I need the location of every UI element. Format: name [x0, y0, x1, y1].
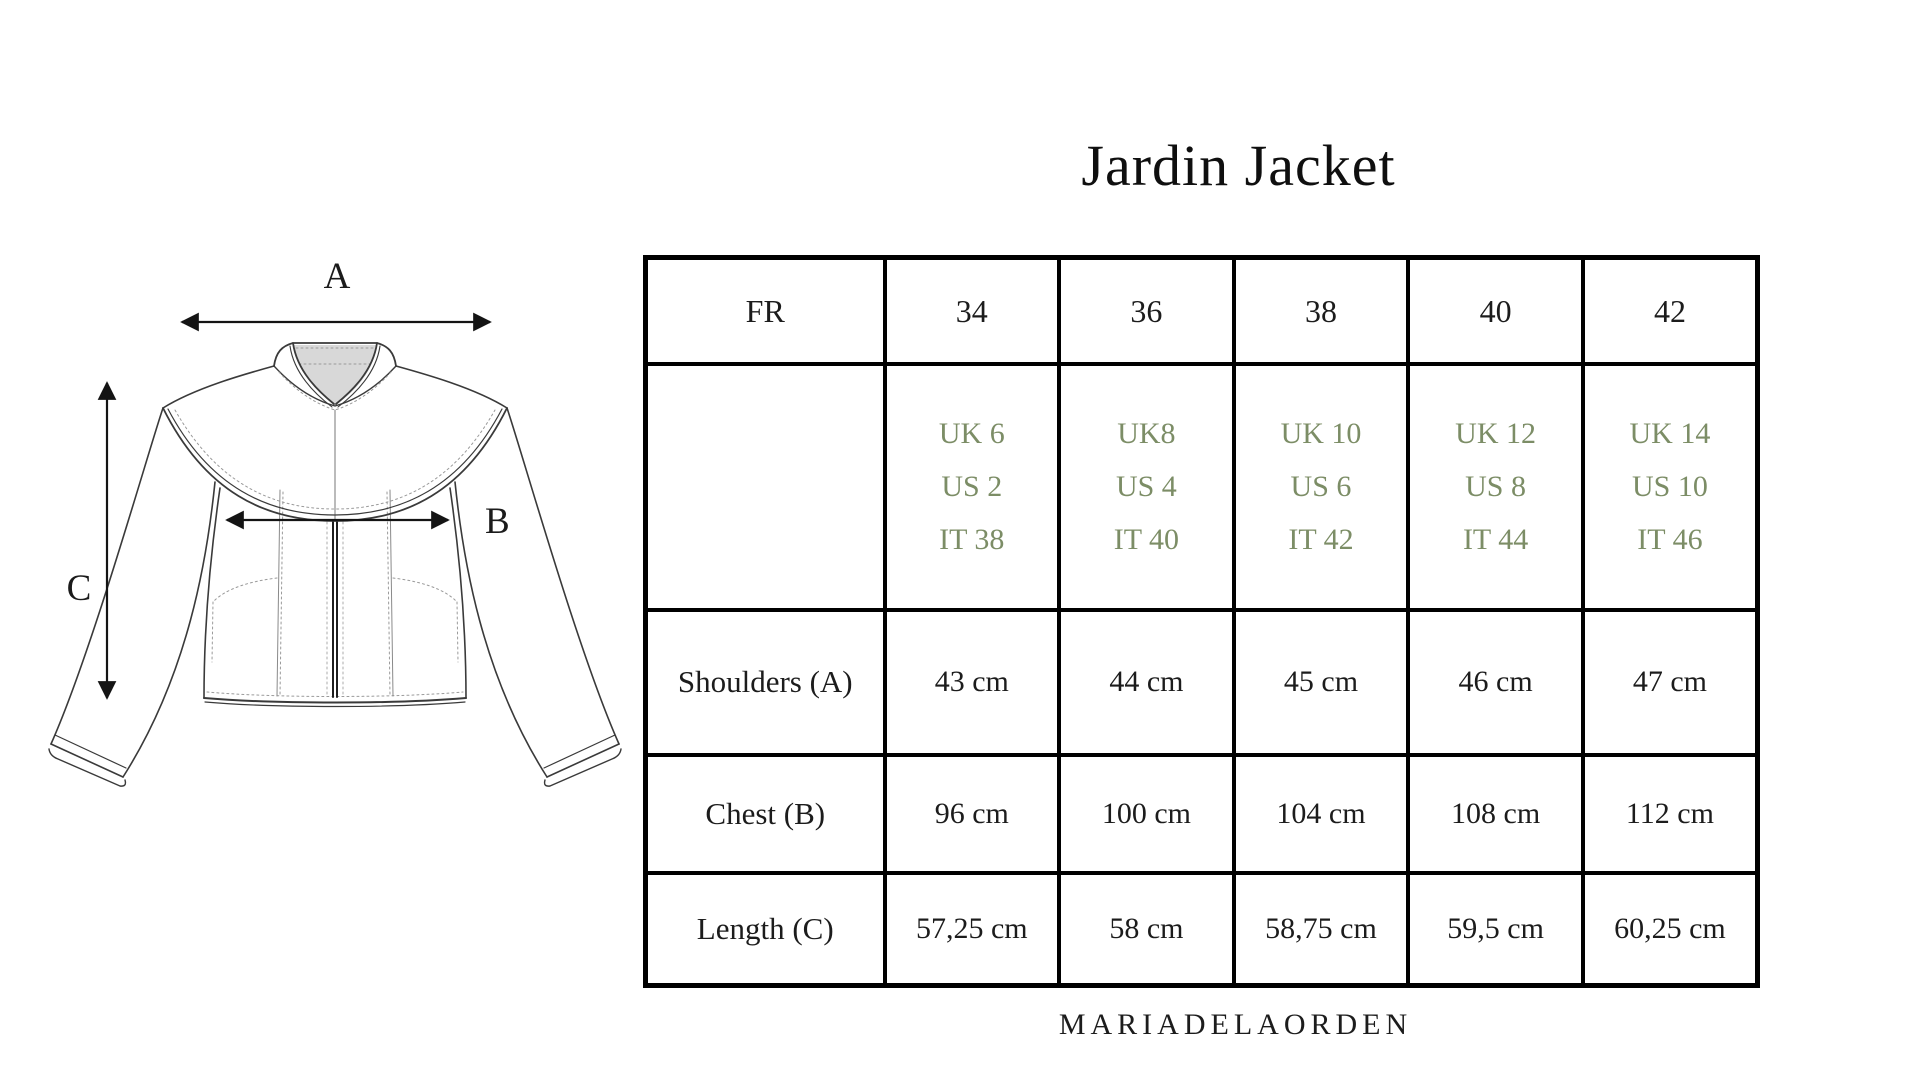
measure-label-c: C [67, 568, 92, 609]
it-size: IT 42 [1236, 513, 1407, 566]
measurement-row-length: Length (C) 57,25 cm 58 cm 58,75 cm 59,5 … [646, 873, 1758, 985]
collar [274, 343, 396, 410]
size-table: FR 34 36 38 40 42 UK 6 US 2 IT 38 UK8 US… [643, 255, 1760, 988]
measurement-value-cell: 58,75 cm [1234, 873, 1409, 985]
measurement-value-cell: 46 cm [1408, 610, 1583, 755]
measurement-value-cell: 112 cm [1583, 755, 1758, 873]
jacket-diagram: A B C [30, 230, 650, 810]
uk-size: UK 12 [1410, 407, 1581, 460]
size-header-row: FR 34 36 38 40 42 [646, 258, 1758, 365]
conversion-cell: UK 6 US 2 IT 38 [885, 364, 1060, 609]
size-header-cell: 36 [1059, 258, 1234, 365]
page-title: Jardin Jacket [680, 134, 1797, 198]
measure-label-b: B [485, 501, 510, 542]
region-label-cell: FR [646, 258, 885, 365]
it-size: IT 38 [887, 513, 1058, 566]
conversion-cell: UK 12 US 8 IT 44 [1408, 364, 1583, 609]
uk-size: UK 6 [887, 407, 1058, 460]
conversion-cell: UK 14 US 10 IT 46 [1583, 364, 1758, 609]
measurement-label: Chest (B) [646, 755, 885, 873]
measurement-value-cell: 57,25 cm [885, 873, 1060, 985]
measurement-value-cell: 44 cm [1059, 610, 1234, 755]
jacket-illustration [49, 343, 621, 786]
measurement-value-cell: 59,5 cm [1408, 873, 1583, 985]
us-size: US 10 [1585, 460, 1755, 513]
measurement-value-cell: 104 cm [1234, 755, 1409, 873]
measure-arrows [107, 322, 490, 698]
measurement-label: Length (C) [646, 873, 885, 985]
measurement-value-cell: 43 cm [885, 610, 1060, 755]
conversion-cell: UK 10 US 6 IT 42 [1234, 364, 1409, 609]
us-size: US 2 [887, 460, 1058, 513]
sleeve-right [455, 408, 621, 786]
size-header-cell: 38 [1234, 258, 1409, 365]
measurement-value-cell: 96 cm [885, 755, 1060, 873]
us-size: US 6 [1236, 460, 1407, 513]
measurement-value-cell: 58 cm [1059, 873, 1234, 985]
measurement-value-cell: 108 cm [1408, 755, 1583, 873]
conversion-label-cell [646, 364, 885, 609]
measurement-value-cell: 45 cm [1234, 610, 1409, 755]
uk-size: UK8 [1061, 407, 1232, 460]
size-header-cell: 40 [1408, 258, 1583, 365]
it-size: IT 40 [1061, 513, 1232, 566]
us-size: US 8 [1410, 460, 1581, 513]
conversion-row: UK 6 US 2 IT 38 UK8 US 4 IT 40 UK 10 US … [646, 364, 1758, 609]
conversion-cell: UK8 US 4 IT 40 [1059, 364, 1234, 609]
measurement-row-chest: Chest (B) 96 cm 100 cm 104 cm 108 cm 112… [646, 755, 1758, 873]
zipper [327, 410, 343, 697]
uk-size: UK 10 [1236, 407, 1407, 460]
brand-footer: MARIADELAORDEN [677, 1008, 1794, 1042]
it-size: IT 44 [1410, 513, 1581, 566]
measurement-label: Shoulders (A) [646, 610, 885, 755]
it-size: IT 46 [1585, 513, 1755, 566]
measure-label-a: A [324, 256, 351, 297]
measurement-row-shoulders: Shoulders (A) 43 cm 44 cm 45 cm 46 cm 47… [646, 610, 1758, 755]
size-header-cell: 34 [885, 258, 1060, 365]
measurement-value-cell: 100 cm [1059, 755, 1234, 873]
us-size: US 4 [1061, 460, 1232, 513]
measurement-value-cell: 60,25 cm [1583, 873, 1758, 985]
uk-size: UK 14 [1585, 407, 1755, 460]
size-header-cell: 42 [1583, 258, 1758, 365]
measurement-value-cell: 47 cm [1583, 610, 1758, 755]
